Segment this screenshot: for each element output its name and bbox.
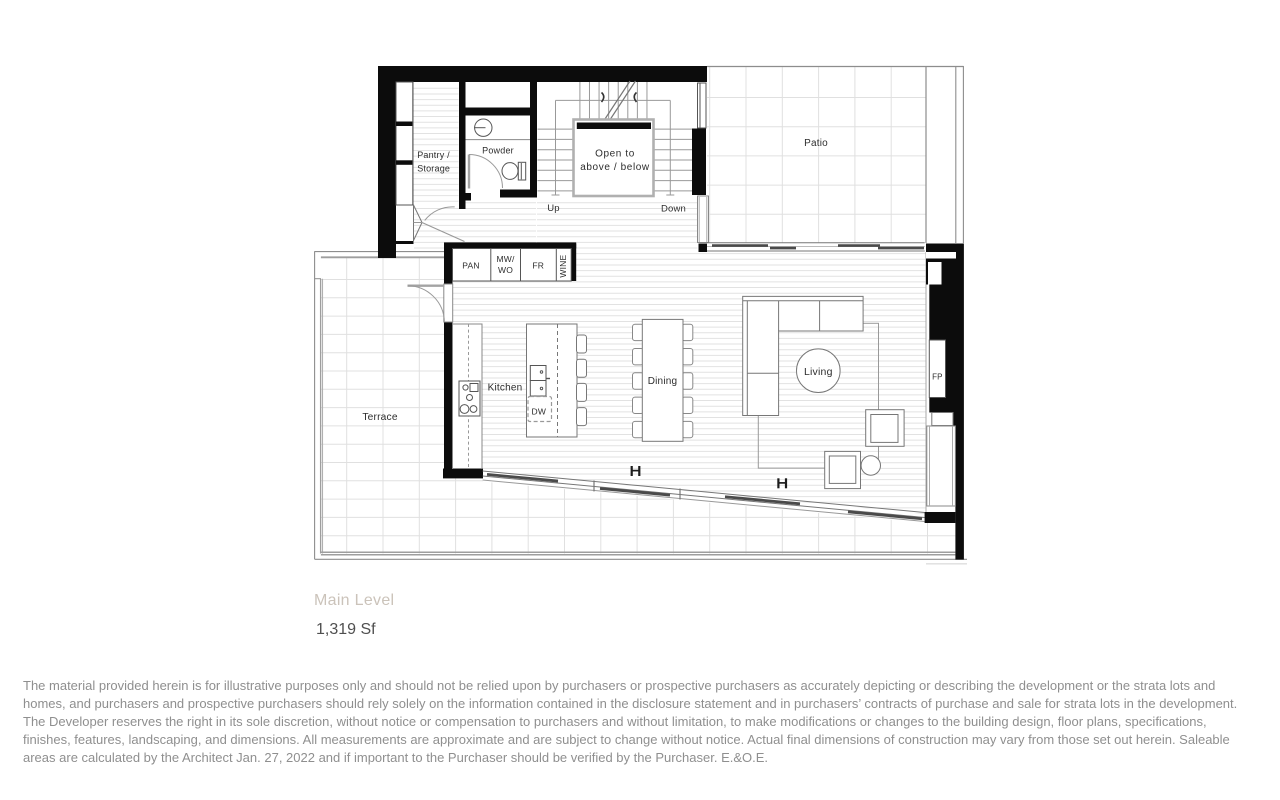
svg-text:FR: FR	[532, 260, 544, 270]
svg-text:Open to: Open to	[595, 149, 635, 160]
svg-text:Storage: Storage	[417, 164, 450, 174]
svg-text:Powder: Powder	[482, 146, 514, 156]
svg-text:FP: FP	[932, 373, 943, 382]
svg-text:WO: WO	[498, 265, 513, 275]
svg-text:PAN: PAN	[462, 260, 479, 270]
svg-text:Down: Down	[661, 204, 686, 215]
svg-text:Patio: Patio	[804, 138, 828, 149]
svg-text:WINE: WINE	[558, 254, 568, 277]
svg-text:Living: Living	[804, 366, 833, 378]
svg-text:Kitchen: Kitchen	[488, 383, 523, 394]
svg-text:MW/: MW/	[496, 254, 515, 264]
svg-text:Dining: Dining	[648, 376, 678, 387]
svg-text:Pantry /: Pantry /	[417, 150, 450, 160]
svg-text:above / below: above / below	[580, 162, 650, 173]
svg-text:Up: Up	[547, 203, 560, 214]
svg-text:Terrace: Terrace	[362, 412, 398, 423]
svg-text:DW: DW	[532, 407, 547, 417]
